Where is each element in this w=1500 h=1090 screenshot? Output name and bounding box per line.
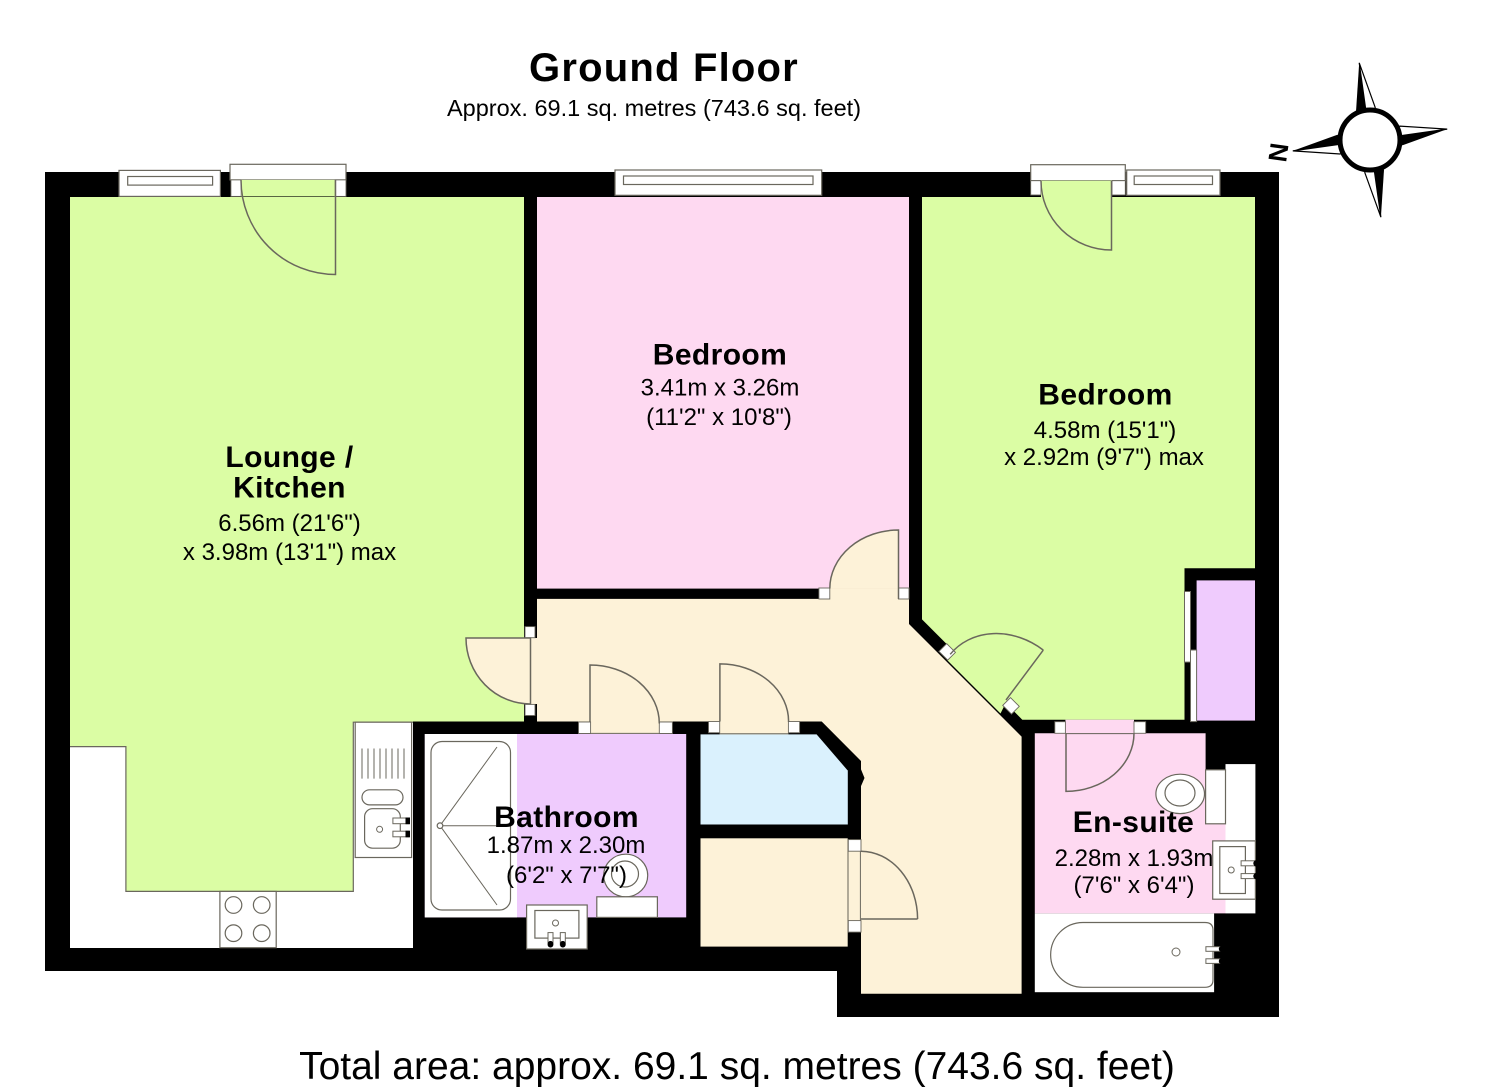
- svg-text:Ground Floor: Ground Floor: [529, 46, 799, 90]
- svg-text:Lounge /: Lounge /: [225, 441, 353, 474]
- svg-text:(6'2" x 7'7"): (6'2" x 7'7"): [506, 862, 627, 889]
- svg-text:Bedroom: Bedroom: [1038, 379, 1172, 412]
- svg-text:(7'6" x 6'4"): (7'6" x 6'4"): [1074, 872, 1195, 899]
- svg-text:1.87m x 2.30m: 1.87m x 2.30m: [487, 832, 646, 859]
- svg-text:4.58m (15'1"): 4.58m (15'1"): [1034, 417, 1177, 444]
- svg-text:Kitchen: Kitchen: [233, 472, 346, 505]
- svg-text:2.28m x 1.93m: 2.28m x 1.93m: [1055, 845, 1214, 872]
- svg-text:Approx. 69.1 sq. metres (743.6: Approx. 69.1 sq. metres (743.6 sq. feet): [447, 95, 861, 121]
- svg-text:En-suite: En-suite: [1073, 806, 1195, 839]
- svg-text:Bathroom: Bathroom: [494, 801, 639, 834]
- svg-text:Total area: approx. 69.1 sq. m: Total area: approx. 69.1 sq. metres (743…: [299, 1045, 1175, 1088]
- svg-text:(11'2" x 10'8"): (11'2" x 10'8"): [646, 404, 792, 431]
- svg-text:6.56m (21'6"): 6.56m (21'6"): [218, 510, 361, 537]
- svg-text:x 3.98m (13'1") max: x 3.98m (13'1") max: [183, 539, 396, 566]
- svg-text:Bedroom: Bedroom: [653, 339, 787, 372]
- svg-text:N: N: [1262, 141, 1294, 164]
- svg-text:x 2.92m (9'7") max: x 2.92m (9'7") max: [1004, 444, 1204, 471]
- svg-text:3.41m x 3.26m: 3.41m x 3.26m: [641, 375, 800, 402]
